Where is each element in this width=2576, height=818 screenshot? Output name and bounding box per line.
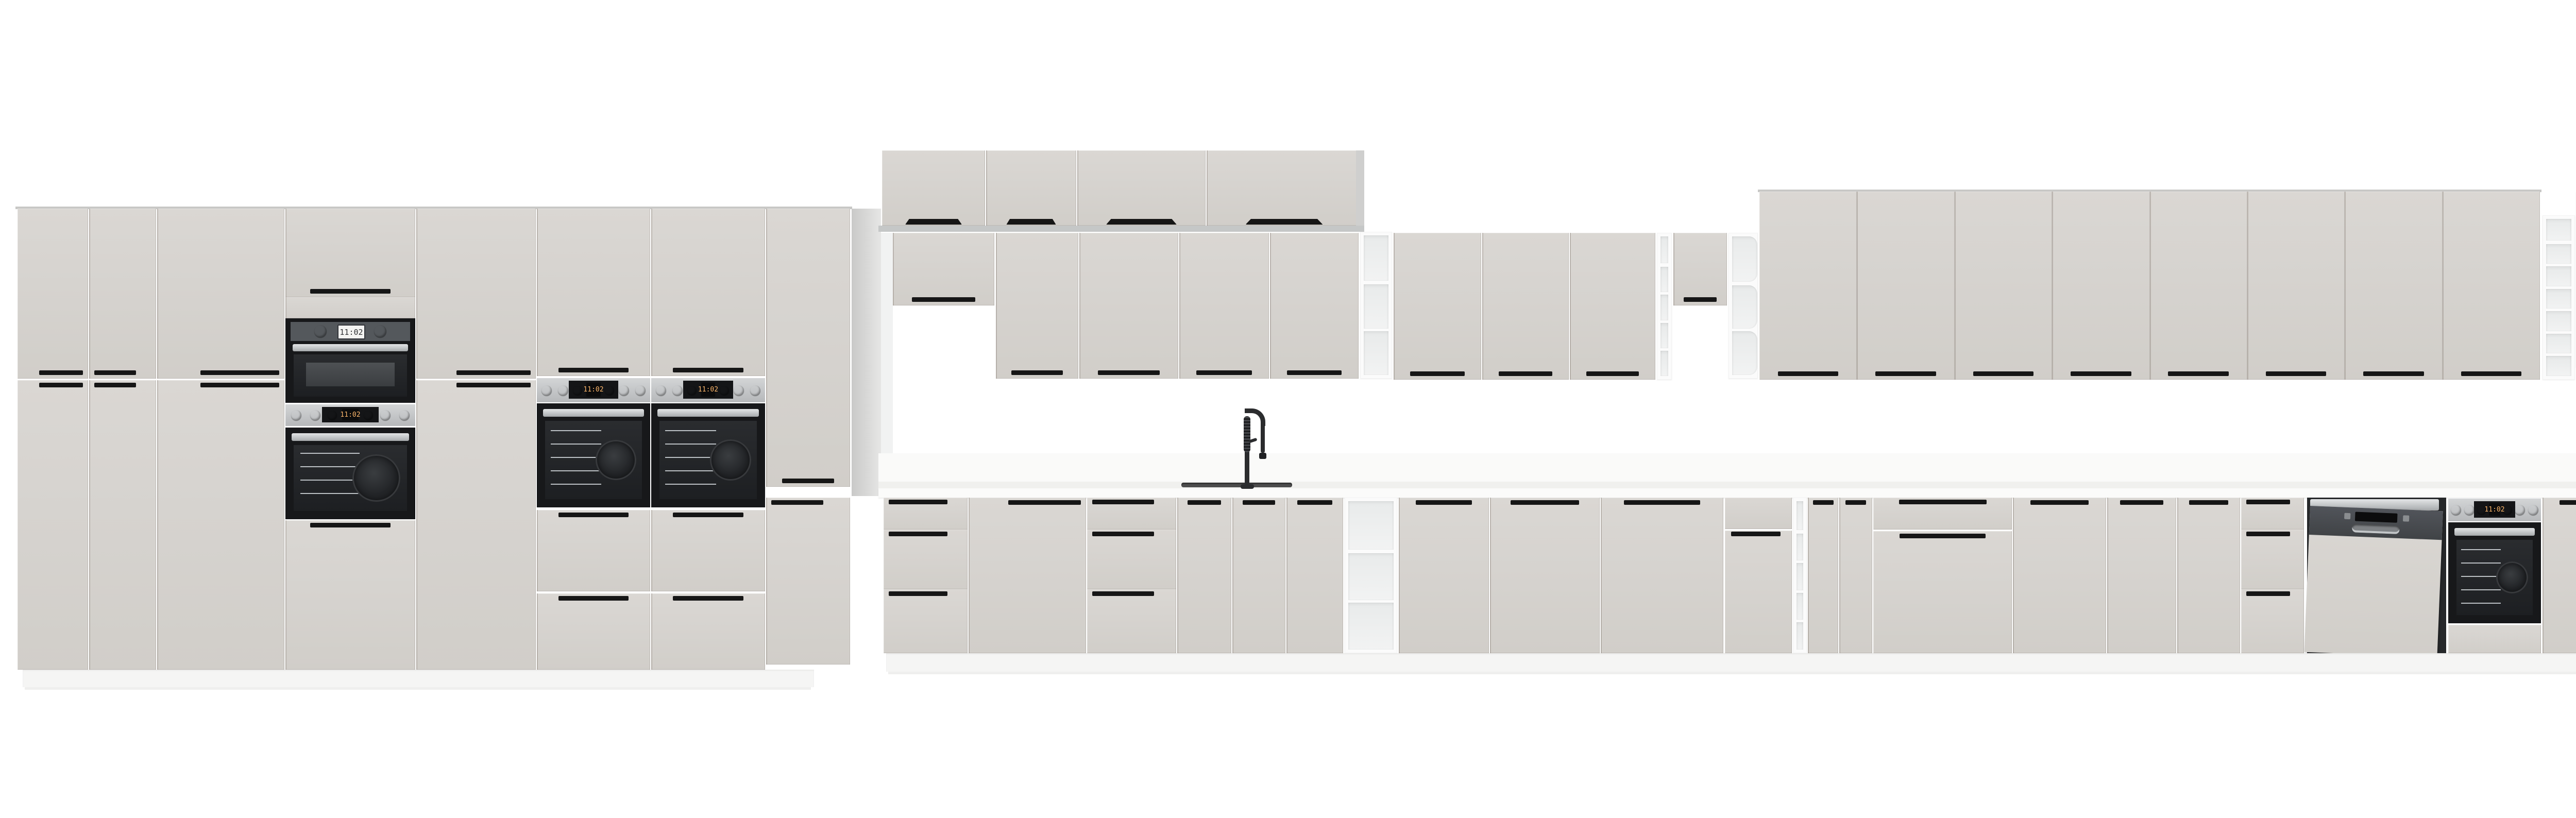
shelf-compartment <box>2546 334 2571 354</box>
door-handle <box>1011 370 1062 375</box>
round-baking-tray <box>2496 561 2528 593</box>
door-handle <box>673 513 743 517</box>
door-handle <box>1297 500 1332 505</box>
base-drawer-front[interactable] <box>2448 625 2541 653</box>
top-row-wall-door[interactable] <box>986 150 1076 226</box>
shelf-compartment <box>1660 351 1668 376</box>
shelf-compartment <box>2546 266 2571 286</box>
oven-knob[interactable] <box>2515 505 2525 515</box>
door-handle <box>2363 371 2424 376</box>
top-row-wall-door[interactable] <box>882 150 985 226</box>
door-handle <box>1778 371 1838 376</box>
door-handle <box>200 383 279 387</box>
tower-top-door[interactable] <box>285 209 415 297</box>
shelf-compartment <box>1364 235 1388 281</box>
round-baking-tray <box>596 440 636 481</box>
base-door[interactable] <box>2177 498 2240 653</box>
oven-handle-bar <box>657 409 759 417</box>
door-handle <box>2030 500 2088 505</box>
door-handle <box>558 596 629 601</box>
door-handle <box>2266 371 2326 376</box>
door-handle <box>673 368 743 372</box>
wall-cabinet-door[interactable] <box>1079 233 1178 379</box>
oven-knob[interactable] <box>310 410 320 420</box>
kitchen-render: 11:0211:0211:0211:0211:02 <box>0 0 2576 818</box>
tower-lower-door[interactable] <box>285 520 415 670</box>
dishwasher-control-band <box>2309 506 2443 540</box>
dishwasher-button[interactable] <box>2403 515 2409 521</box>
door-handle <box>456 370 531 375</box>
door-handle <box>771 500 823 505</box>
door-handle <box>94 383 136 387</box>
door-handle <box>200 370 279 375</box>
tall-block-plinth <box>23 670 814 687</box>
shelf-compartment <box>2546 244 2571 264</box>
dishwasher-door[interactable] <box>2304 506 2443 657</box>
base-drawer-front[interactable] <box>884 530 968 589</box>
oven-knob[interactable] <box>656 385 666 396</box>
floor-shadow <box>888 672 2576 674</box>
top-row-wall-door[interactable] <box>1077 150 1206 226</box>
door-handle <box>1287 370 1342 375</box>
microwave-handle-bar <box>293 344 408 351</box>
door-handle <box>673 596 743 601</box>
shelf-compartment <box>1364 284 1388 328</box>
shelf-compartment <box>1797 534 1803 561</box>
door-handle <box>1899 500 1987 504</box>
base-door[interactable] <box>1725 531 1792 653</box>
tall-lower-door[interactable] <box>89 380 156 670</box>
oven-knob[interactable] <box>558 385 568 396</box>
floor-shadow <box>25 687 811 690</box>
base-door[interactable] <box>1873 531 2012 653</box>
base-door[interactable] <box>2543 498 2576 653</box>
tall-upper-door[interactable] <box>416 209 536 379</box>
dishwasher-display <box>2355 512 2398 523</box>
wall-cabinet-door[interactable] <box>1179 233 1269 379</box>
shelf-compartment <box>1364 331 1388 375</box>
wall-cabinet-door[interactable] <box>893 233 994 305</box>
sink-basin[interactable] <box>1181 483 1292 487</box>
shelf-compartment <box>1660 323 1668 348</box>
base-door[interactable] <box>1286 498 1343 653</box>
door-handle <box>889 500 947 504</box>
oven-knob[interactable] <box>605 386 614 395</box>
tower-top-door[interactable] <box>537 209 650 376</box>
door-handle <box>1092 591 1154 596</box>
tall-lower-door[interactable] <box>416 380 536 670</box>
worktop-reflection <box>878 453 2576 482</box>
tower-top-door[interactable] <box>651 209 765 376</box>
base-drawer-front[interactable] <box>1087 530 1176 589</box>
shelf-compartment <box>2546 311 2571 331</box>
base-door[interactable] <box>1808 498 1838 653</box>
tower-drawer-front[interactable] <box>651 593 765 670</box>
oven-knob[interactable] <box>399 410 410 420</box>
microwave-door-inner <box>306 363 395 386</box>
door-handle <box>2461 371 2521 376</box>
shelf-compartment <box>1660 236 1668 263</box>
tall-upper-door[interactable] <box>18 209 88 379</box>
wall-cabinet-door[interactable] <box>2345 192 2442 380</box>
tall-block-side-panel <box>852 209 881 496</box>
top-row-bottom-shelf <box>878 226 1364 232</box>
door-handle <box>2189 500 2228 505</box>
door-handle <box>912 297 975 302</box>
shelf-compartment <box>1660 267 1668 292</box>
island-plinth <box>886 653 2576 672</box>
tall-upper-door[interactable] <box>766 209 850 487</box>
shelf-compartment <box>2546 356 2571 376</box>
tower-drawer-front[interactable] <box>537 593 650 670</box>
wall-cabinet-door[interactable] <box>1570 233 1655 380</box>
shelf-compartment <box>2546 289 2571 309</box>
door-handle <box>782 479 834 483</box>
round-baking-tray <box>352 454 400 502</box>
door-handle <box>1416 500 1472 505</box>
tap-spout-tube <box>1261 421 1265 453</box>
oven-handle-bar <box>543 409 644 417</box>
door-handle <box>1511 500 1579 505</box>
door-handle <box>1624 500 1700 505</box>
oven-knob[interactable] <box>687 386 697 395</box>
door-handle <box>1973 371 2033 376</box>
door-handle <box>1008 500 1081 505</box>
wall-cabinet-door[interactable] <box>1673 233 1727 305</box>
door-handle <box>1106 219 1177 225</box>
oven-knob[interactable] <box>2528 505 2538 515</box>
shelf-compartment <box>1732 236 1757 282</box>
wall-cabinet-door[interactable] <box>1857 192 1954 380</box>
oven-knob[interactable] <box>541 385 552 396</box>
dishwasher-handle[interactable] <box>2352 524 2400 534</box>
door-handle <box>456 383 531 387</box>
door-handle <box>1092 500 1154 504</box>
wall-cabinet-door[interactable] <box>1955 192 2052 380</box>
wall-cabinet-door[interactable] <box>1270 233 1359 379</box>
shelf-compartment <box>1797 563 1803 590</box>
door-handle <box>1246 219 1323 225</box>
oven-knob[interactable] <box>720 386 729 395</box>
door-handle <box>558 513 629 517</box>
wall-cabinet-door[interactable] <box>1482 233 1569 380</box>
base-door[interactable] <box>2107 498 2176 653</box>
door-handle <box>94 370 136 375</box>
oven-knob[interactable] <box>374 325 386 337</box>
oven-display: 11:02 <box>2489 503 2500 516</box>
oven-knob[interactable] <box>672 385 683 396</box>
oven-racks <box>300 453 359 502</box>
door-handle <box>1098 370 1159 375</box>
door-handle <box>1188 500 1221 505</box>
tower-drawer-front[interactable] <box>537 510 650 591</box>
base-door[interactable] <box>1490 498 1600 653</box>
base-door[interactable] <box>1177 498 1231 653</box>
shelf-compartment <box>1732 285 1757 329</box>
door-handle <box>1499 371 1552 376</box>
door-handle <box>558 368 629 372</box>
door-handle <box>1196 370 1252 375</box>
door-handle <box>1875 371 1936 376</box>
door-handle <box>1813 500 1834 505</box>
shelf-compartment <box>1348 603 1394 650</box>
oven-handle-bar <box>2454 528 2535 536</box>
shelf-compartment <box>1348 553 1394 600</box>
top-row-wall-door[interactable] <box>1207 150 1362 226</box>
filler-panel[interactable] <box>285 297 415 318</box>
shelf-compartment <box>1797 622 1803 650</box>
wall-cabinet-door[interactable] <box>1759 192 1857 380</box>
door-handle <box>310 289 391 294</box>
base-door[interactable] <box>1839 498 1872 653</box>
oven-knob[interactable] <box>328 411 337 420</box>
door-handle <box>310 523 391 527</box>
door-handle <box>889 532 947 536</box>
top-row-side-shade <box>1356 150 1364 226</box>
base-drawer-front[interactable] <box>884 589 968 653</box>
door-handle <box>1006 219 1056 225</box>
wall-cabinet-door[interactable] <box>996 233 1078 379</box>
shelf-compartment <box>1348 501 1394 550</box>
oven-knob[interactable] <box>635 385 646 396</box>
door-handle <box>39 383 83 387</box>
door-handle <box>2120 500 2163 505</box>
wall-cabinet-door[interactable] <box>1394 233 1481 380</box>
door-handle <box>1900 534 1986 538</box>
oven-knob[interactable] <box>750 385 760 396</box>
door-handle <box>889 591 947 596</box>
oven-display: 11:02 <box>342 409 358 420</box>
base-door[interactable] <box>2013 498 2106 653</box>
door-handle <box>2560 500 2576 505</box>
door-handle <box>1243 500 1276 505</box>
base-drawer-front[interactable] <box>1725 498 1792 529</box>
round-baking-tray <box>710 439 751 480</box>
door-handle <box>2071 371 2131 376</box>
oven-racks <box>2461 549 2501 605</box>
wall-cabinet-door[interactable] <box>2247 192 2345 380</box>
door-handle <box>2168 371 2228 376</box>
microwave-display: 11:02 <box>337 325 365 339</box>
door-handle <box>2246 532 2290 536</box>
base-door[interactable] <box>1601 498 1723 653</box>
tower-drawer-front[interactable] <box>651 510 765 591</box>
wall-cabinet-door[interactable] <box>2443 192 2540 380</box>
door-handle <box>1092 532 1154 536</box>
oven-display: 11:02 <box>586 383 600 397</box>
worktop-surface <box>878 482 2576 488</box>
door-handle <box>2246 591 2290 596</box>
base-door[interactable] <box>969 498 1086 653</box>
oven-knob[interactable] <box>619 385 629 396</box>
oven-display: 11:02 <box>701 383 715 397</box>
tall-upper-door[interactable] <box>157 209 284 379</box>
door-handle <box>1731 532 1781 536</box>
shelf-compartment <box>1797 501 1803 530</box>
shelf-compartment <box>2546 219 2571 241</box>
base-drawer-front[interactable] <box>2241 589 2304 653</box>
door-handle <box>1684 297 1717 302</box>
oven-knob[interactable] <box>734 385 744 396</box>
wall-cabinet-door[interactable] <box>2052 192 2149 380</box>
oven-racks <box>665 430 716 488</box>
door-handle <box>905 219 962 225</box>
base-drawer-front[interactable] <box>1087 589 1176 653</box>
tap-spray-head <box>1259 453 1266 459</box>
base-drawer-front[interactable] <box>2241 530 2304 589</box>
shelf-compartment <box>1660 295 1668 320</box>
tall-lower-door[interactable] <box>157 380 284 670</box>
door-handle <box>2246 500 2290 504</box>
oven-knob[interactable] <box>314 325 327 337</box>
tall-lower-door[interactable] <box>18 380 88 670</box>
shelf-compartment <box>1732 331 1757 375</box>
base-door[interactable] <box>1232 498 1285 653</box>
oven-knob[interactable] <box>573 386 582 395</box>
worktop-front-edge <box>878 488 2576 498</box>
door-handle <box>39 370 83 375</box>
door-handle <box>1410 371 1464 376</box>
oven-racks <box>551 430 601 488</box>
base-door[interactable] <box>1399 498 1489 653</box>
oven-handle-bar <box>292 433 409 441</box>
oven-knob[interactable] <box>380 410 391 420</box>
tall-upper-door[interactable] <box>89 209 156 379</box>
shelf-compartment <box>1797 593 1803 620</box>
wall-cabinet-door[interactable] <box>2150 192 2247 380</box>
dishwasher-button[interactable] <box>2344 513 2350 519</box>
door-handle <box>1845 500 1866 505</box>
door-handle <box>1586 371 1639 376</box>
base-door[interactable] <box>766 498 850 664</box>
